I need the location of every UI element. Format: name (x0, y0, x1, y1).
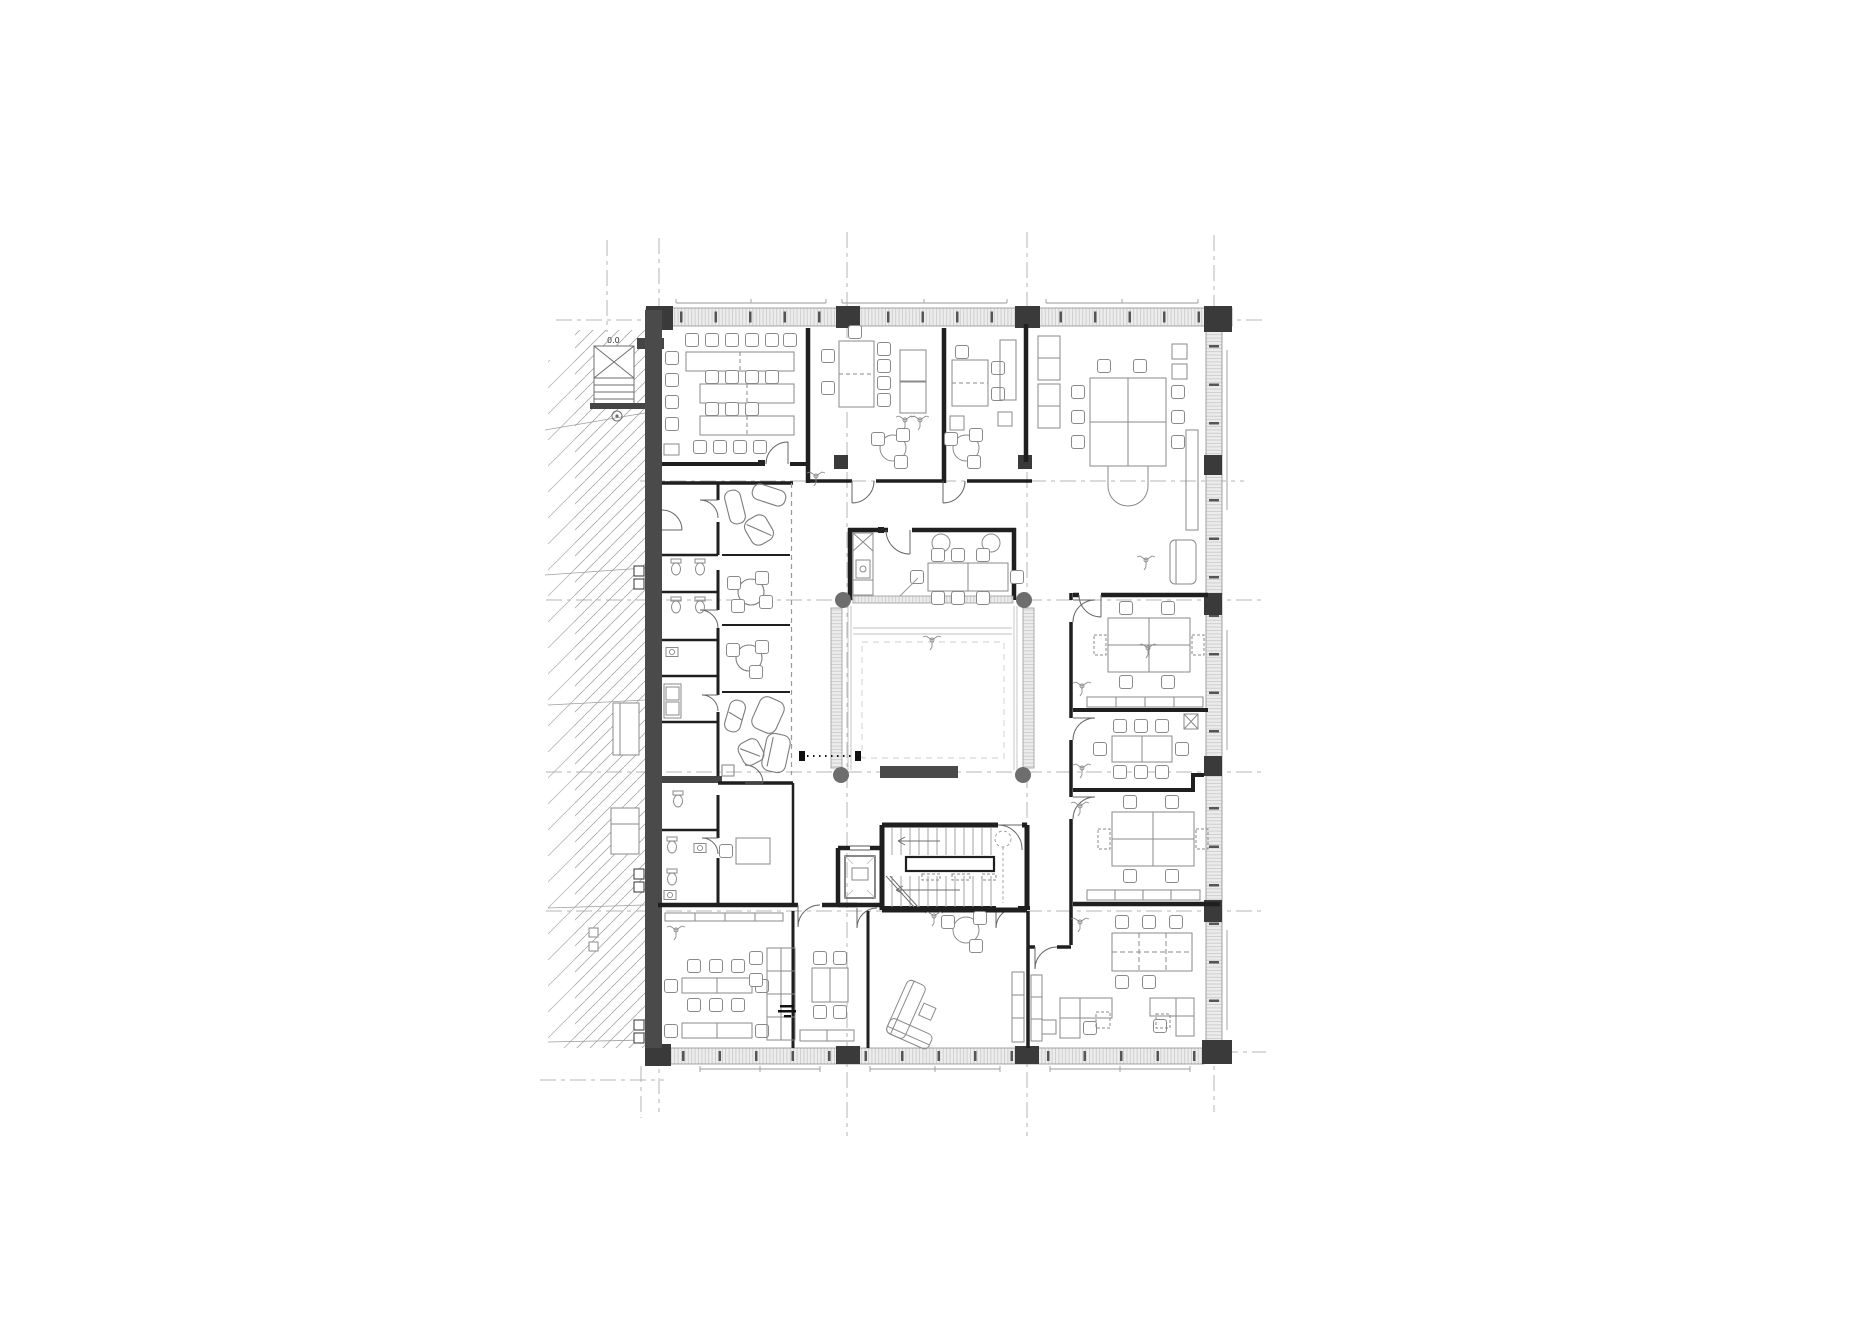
stair-core (882, 825, 1027, 910)
corner-desk-left (1042, 998, 1112, 1038)
lectern (1108, 466, 1148, 506)
atrium-glazing-west (831, 608, 842, 768)
floor-plan-page: 0.0 (0, 0, 1872, 1324)
meeting-room-large (664, 334, 797, 456)
recess-wall (590, 403, 653, 409)
office-bottom-left (665, 913, 797, 1040)
focus-room-1-lounge (723, 482, 788, 548)
elevator-car (845, 856, 875, 898)
office-right-2 (1071, 796, 1208, 901)
floor-plan-drawing: 0.0 (0, 0, 1872, 1324)
external-stair (594, 346, 634, 404)
wc-block (664, 559, 706, 900)
reception-lounge (853, 533, 1024, 605)
atrium-columns (833, 592, 1032, 783)
meeting-room-top-2 (945, 340, 1017, 469)
elevator (838, 846, 882, 905)
office-right-1 (1073, 602, 1204, 708)
stair-rail (906, 857, 994, 871)
office-bottom-right (1031, 916, 1194, 1042)
kitchenette (664, 684, 681, 718)
meeting-room-right (1073, 714, 1198, 779)
focus-rooms (722, 482, 792, 776)
atrium-glazing-east (1023, 608, 1034, 768)
meeting-room-bottom (800, 952, 854, 1042)
office-top-right (1038, 336, 1198, 584)
small-office-left (720, 838, 771, 864)
lounge-room-bottom (885, 912, 1024, 1051)
coat-stand-icon (1184, 714, 1198, 729)
atrium-void (799, 592, 1034, 783)
meeting-room-top-1 (822, 326, 930, 469)
focus-room-3-table (727, 641, 769, 679)
corner-sofa (885, 979, 951, 1051)
stair-dash-rects (922, 874, 996, 880)
atrium-bench (880, 766, 958, 778)
focus-room-4-lounge (723, 694, 792, 774)
kitchen-counter (853, 533, 873, 595)
level-label: 0.0 (607, 336, 620, 345)
section-line (799, 751, 861, 761)
focus-room-2-table (728, 572, 773, 613)
corner-desk-right (1150, 998, 1194, 1036)
